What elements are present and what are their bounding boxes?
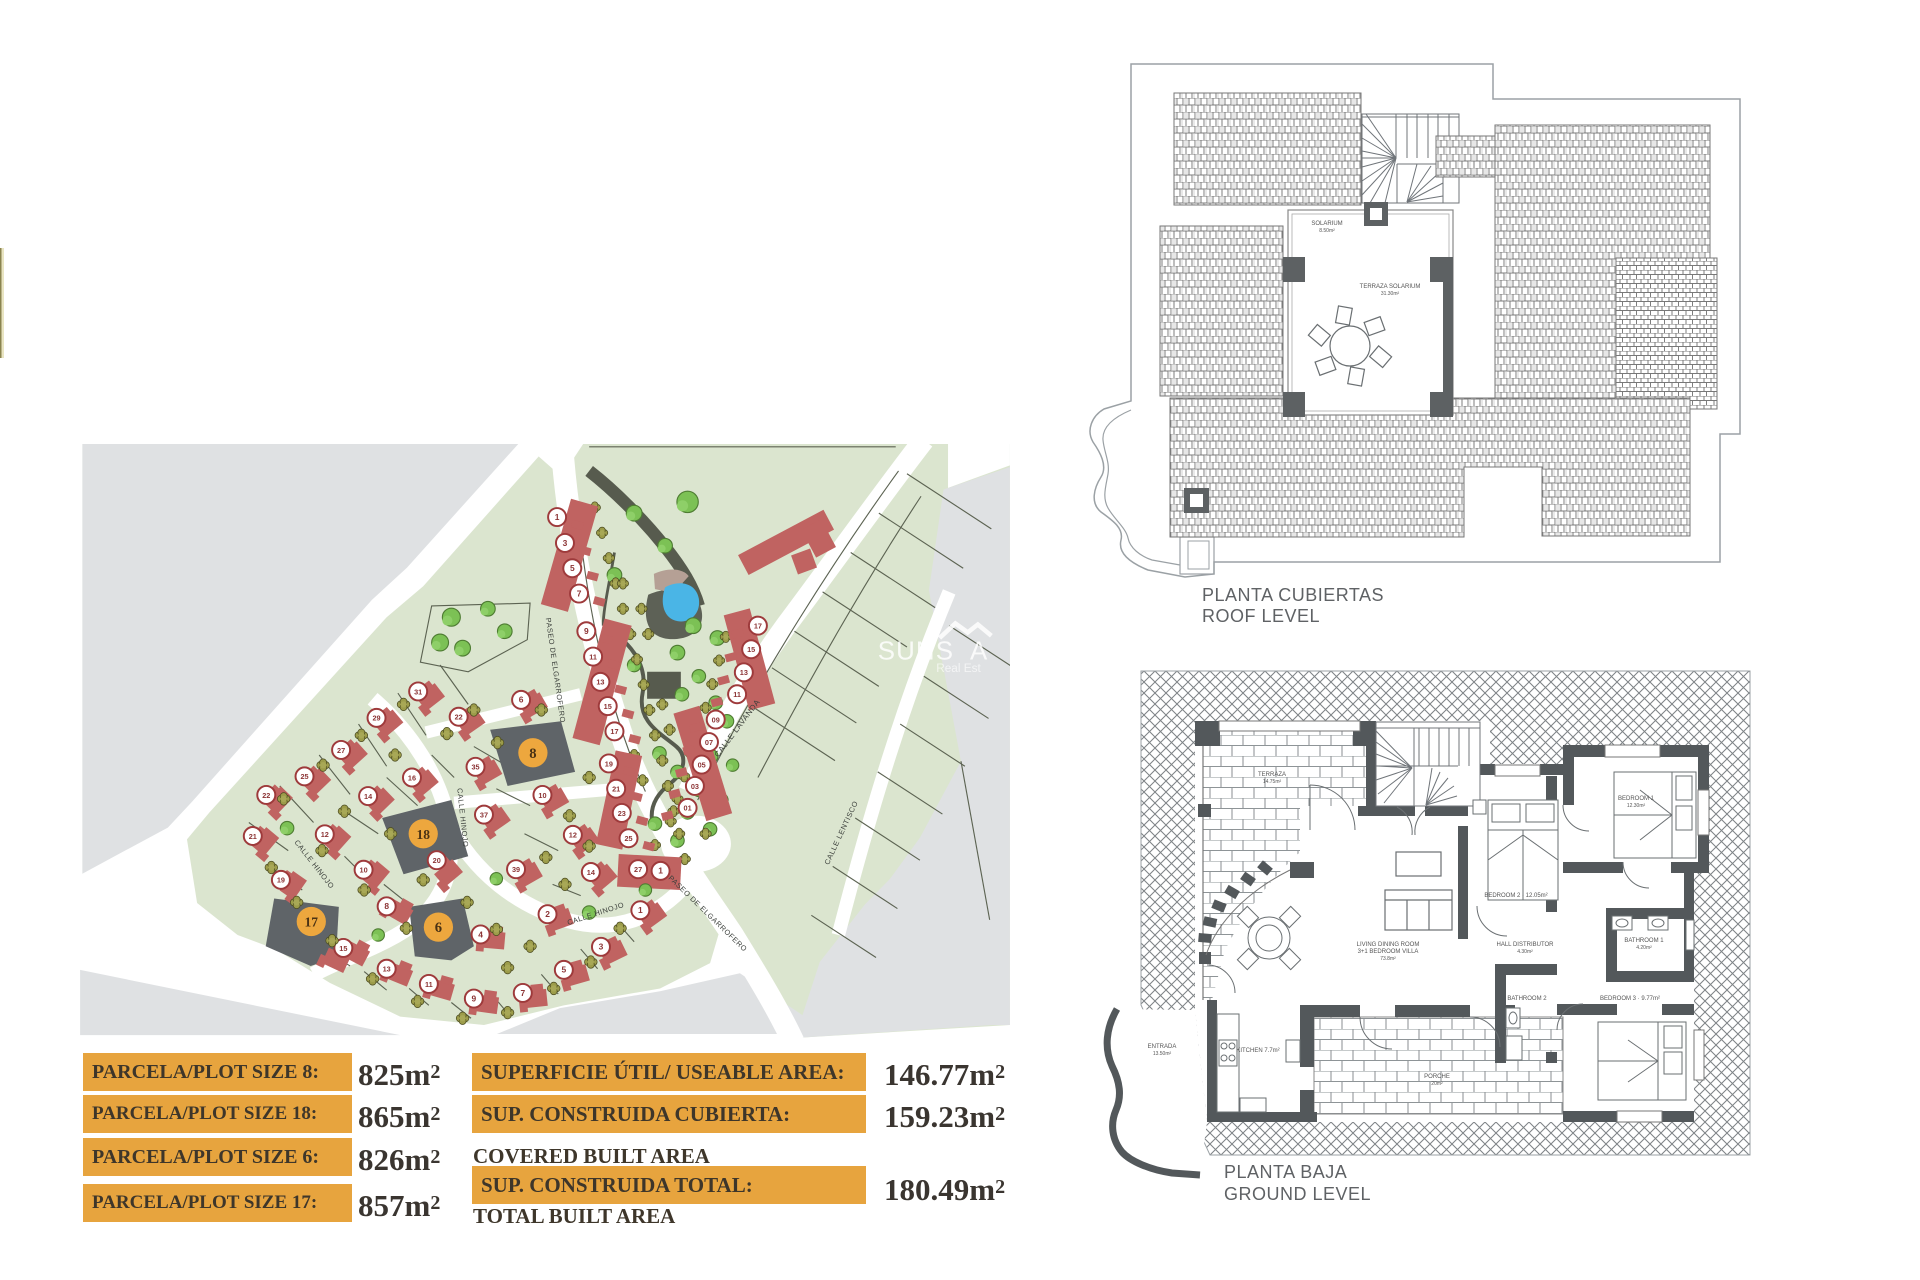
svg-text:39: 39	[512, 865, 520, 874]
svg-text:BEDROOM 1: BEDROOM 1	[1618, 796, 1655, 802]
svg-text:TERRAZA: TERRAZA	[1258, 772, 1286, 778]
svg-text:PORCHE: PORCHE	[1424, 1074, 1450, 1080]
svg-text:11: 11	[425, 980, 433, 989]
svg-text:21: 21	[249, 832, 257, 841]
svg-text:35: 35	[471, 763, 479, 772]
svg-text:1: 1	[658, 866, 663, 876]
svg-text:8: 8	[529, 746, 536, 762]
svg-text:17: 17	[305, 915, 319, 930]
svg-text:14: 14	[587, 868, 596, 877]
svg-text:6: 6	[519, 695, 524, 705]
svg-text:73.8m²: 73.8m²	[1380, 956, 1396, 962]
svg-text:7: 7	[577, 588, 582, 598]
svg-text:01: 01	[684, 804, 692, 813]
svg-text:25: 25	[300, 772, 308, 781]
svg-text:KITCHEN 7.7m²: KITCHEN 7.7m²	[1236, 1048, 1279, 1054]
svg-text:1: 1	[555, 512, 560, 522]
svg-text:2: 2	[545, 909, 550, 919]
svg-text:3+1 BEDROOM VILLA: 3+1 BEDROOM VILLA	[1358, 949, 1419, 955]
svg-text:16: 16	[408, 773, 416, 782]
svg-text:HALL DISTRIBUTOR: HALL DISTRIBUTOR	[1496, 942, 1554, 948]
svg-text:27: 27	[337, 746, 345, 755]
svg-text:3: 3	[599, 942, 604, 952]
svg-text:21: 21	[612, 785, 620, 794]
svg-text:09: 09	[712, 715, 720, 724]
svg-text:14: 14	[364, 792, 373, 801]
svg-text:15: 15	[339, 944, 347, 953]
svg-text:SOLARIUM: SOLARIUM	[1311, 221, 1342, 227]
svg-text:07: 07	[705, 738, 713, 747]
svg-text:25: 25	[624, 834, 632, 843]
svg-text:15: 15	[604, 702, 612, 711]
svg-text:11: 11	[733, 690, 741, 699]
svg-text:05: 05	[698, 760, 706, 769]
svg-text:Real Est: Real Est	[936, 661, 981, 675]
svg-text:29: 29	[372, 714, 380, 723]
svg-text:14.75m²: 14.75m²	[1263, 779, 1282, 785]
svg-text:BATHROOM 2: BATHROOM 2	[1507, 996, 1547, 1002]
svg-text:13: 13	[740, 668, 748, 677]
svg-text:20m²: 20m²	[1431, 1081, 1443, 1087]
svg-text:12: 12	[321, 830, 329, 839]
svg-text:13: 13	[383, 965, 391, 974]
svg-text:6: 6	[435, 920, 442, 936]
svg-text:5: 5	[562, 965, 567, 975]
svg-text:27: 27	[634, 865, 642, 874]
svg-text:ROOF LEVEL: ROOF LEVEL	[1202, 606, 1320, 626]
svg-text:4.30m²: 4.30m²	[1517, 949, 1533, 955]
svg-text:8: 8	[384, 901, 389, 911]
svg-text:11: 11	[589, 652, 597, 661]
svg-text:22: 22	[262, 791, 270, 800]
svg-text:22: 22	[455, 713, 463, 722]
svg-text:19: 19	[277, 876, 285, 885]
svg-text:3: 3	[563, 538, 568, 548]
svg-text:9: 9	[584, 626, 589, 636]
svg-text:PLANTA CUBIERTAS: PLANTA CUBIERTAS	[1202, 585, 1384, 605]
svg-text:GROUND LEVEL: GROUND LEVEL	[1224, 1184, 1371, 1204]
svg-text:15: 15	[747, 645, 755, 654]
svg-text:BEDROOM 2 · 12.05m²: BEDROOM 2 · 12.05m²	[1484, 893, 1547, 899]
svg-text:9: 9	[472, 993, 477, 1003]
svg-text:PLANTA BAJA: PLANTA BAJA	[1224, 1162, 1347, 1182]
svg-text:10: 10	[538, 791, 546, 800]
svg-text:37: 37	[480, 810, 488, 819]
svg-text:ENTRADA: ENTRADA	[1148, 1044, 1177, 1050]
svg-text:18: 18	[416, 827, 430, 842]
svg-text:LIVING DINING ROOM: LIVING DINING ROOM	[1357, 942, 1420, 948]
svg-text:23: 23	[618, 809, 626, 818]
svg-text:31: 31	[414, 687, 422, 696]
svg-text:BATHROOM 1: BATHROOM 1	[1624, 938, 1664, 944]
svg-text:TERRAZA SOLARIUM: TERRAZA SOLARIUM	[1360, 284, 1421, 290]
svg-text:17: 17	[610, 727, 618, 736]
svg-text:03: 03	[691, 782, 699, 791]
svg-text:8.50m²: 8.50m²	[1319, 228, 1335, 234]
svg-text:7: 7	[520, 988, 525, 998]
svg-text:1: 1	[638, 905, 643, 915]
svg-text:31.30m²: 31.30m²	[1381, 291, 1400, 297]
svg-text:BEDROOM 3 · 9.77m²: BEDROOM 3 · 9.77m²	[1600, 996, 1660, 1002]
svg-text:12: 12	[569, 831, 577, 840]
svg-text:5: 5	[570, 563, 575, 573]
svg-text:12.30m²: 12.30m²	[1627, 803, 1646, 809]
svg-text:19: 19	[605, 759, 613, 768]
svg-text:4.20m²: 4.20m²	[1636, 945, 1652, 951]
svg-text:10: 10	[360, 866, 368, 875]
svg-text:17: 17	[754, 621, 762, 630]
svg-text:13: 13	[596, 678, 604, 687]
svg-text:4: 4	[478, 929, 483, 939]
svg-text:13.50m²: 13.50m²	[1153, 1051, 1172, 1057]
svg-text:20: 20	[433, 856, 441, 865]
